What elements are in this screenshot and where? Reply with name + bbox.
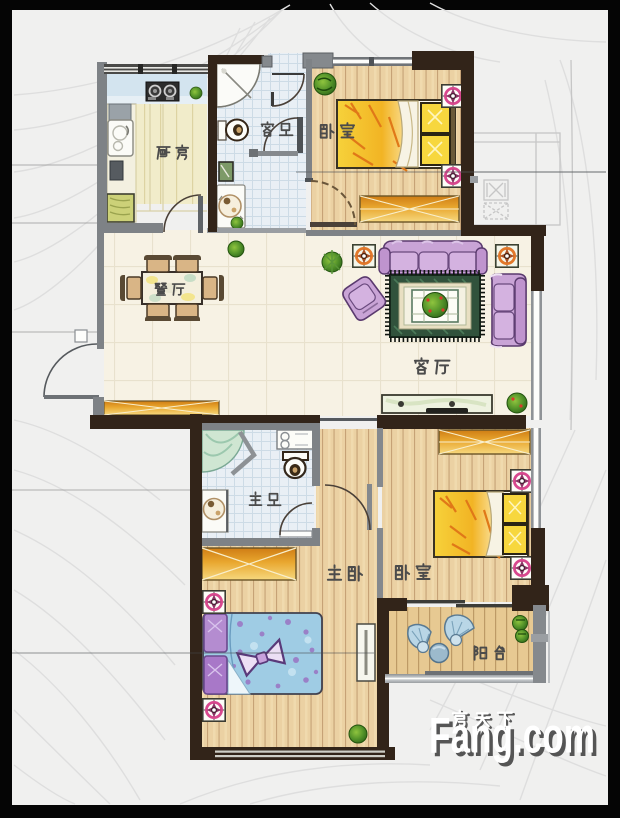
svg-text:Fang.com: Fang.com: [429, 708, 595, 764]
